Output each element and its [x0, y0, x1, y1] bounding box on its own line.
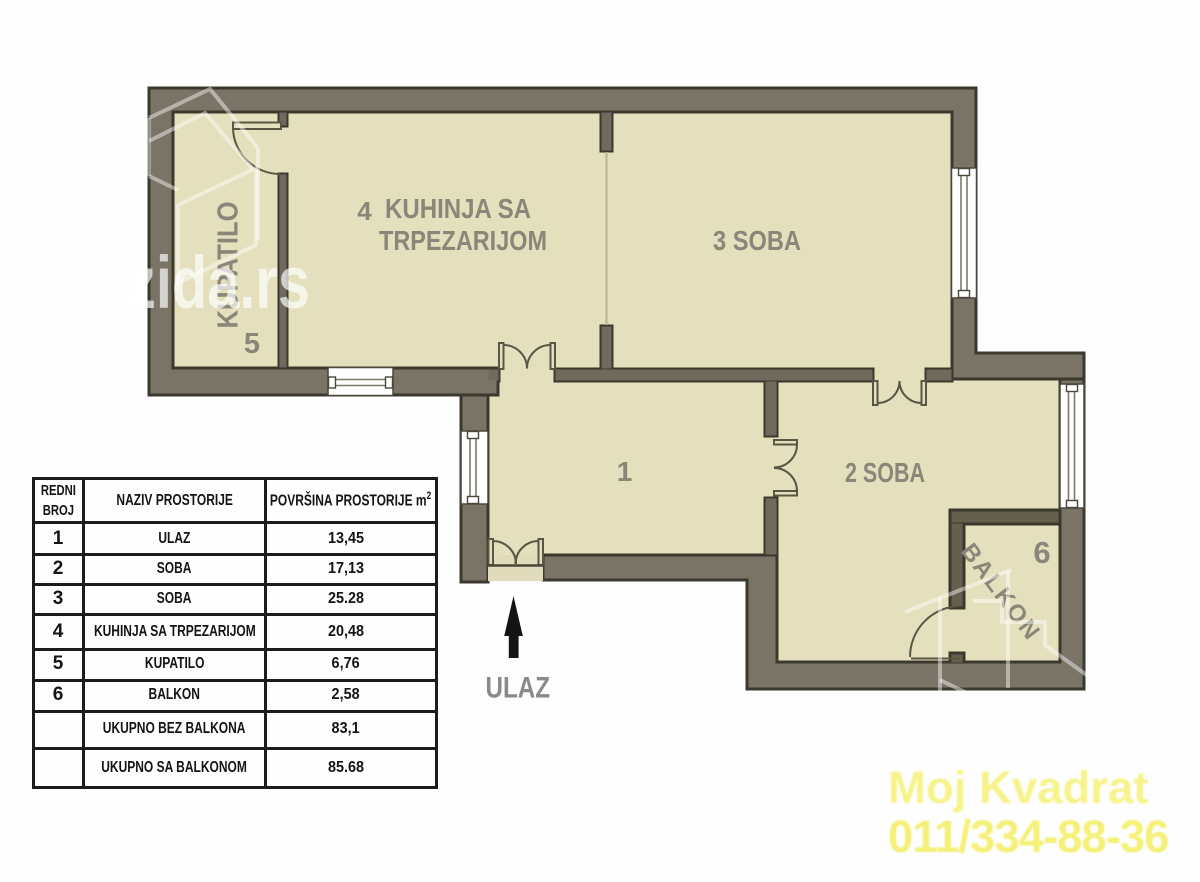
svg-text:4: 4	[357, 196, 372, 226]
svg-text:3 SOBA: 3 SOBA	[713, 225, 801, 256]
svg-text:1: 1	[617, 456, 633, 487]
svg-text:5: 5	[244, 328, 260, 360]
svg-text:6: 6	[1033, 535, 1050, 570]
svg-text:2 SOBA: 2 SOBA	[845, 457, 925, 488]
svg-text:KUHINJA SA: KUHINJA SA	[385, 193, 531, 224]
svg-text:TRPEZARIJOM: TRPEZARIJOM	[379, 225, 547, 256]
svg-text:ULAZ: ULAZ	[486, 672, 551, 705]
svg-text:zida.rs: zida.rs	[127, 241, 310, 324]
